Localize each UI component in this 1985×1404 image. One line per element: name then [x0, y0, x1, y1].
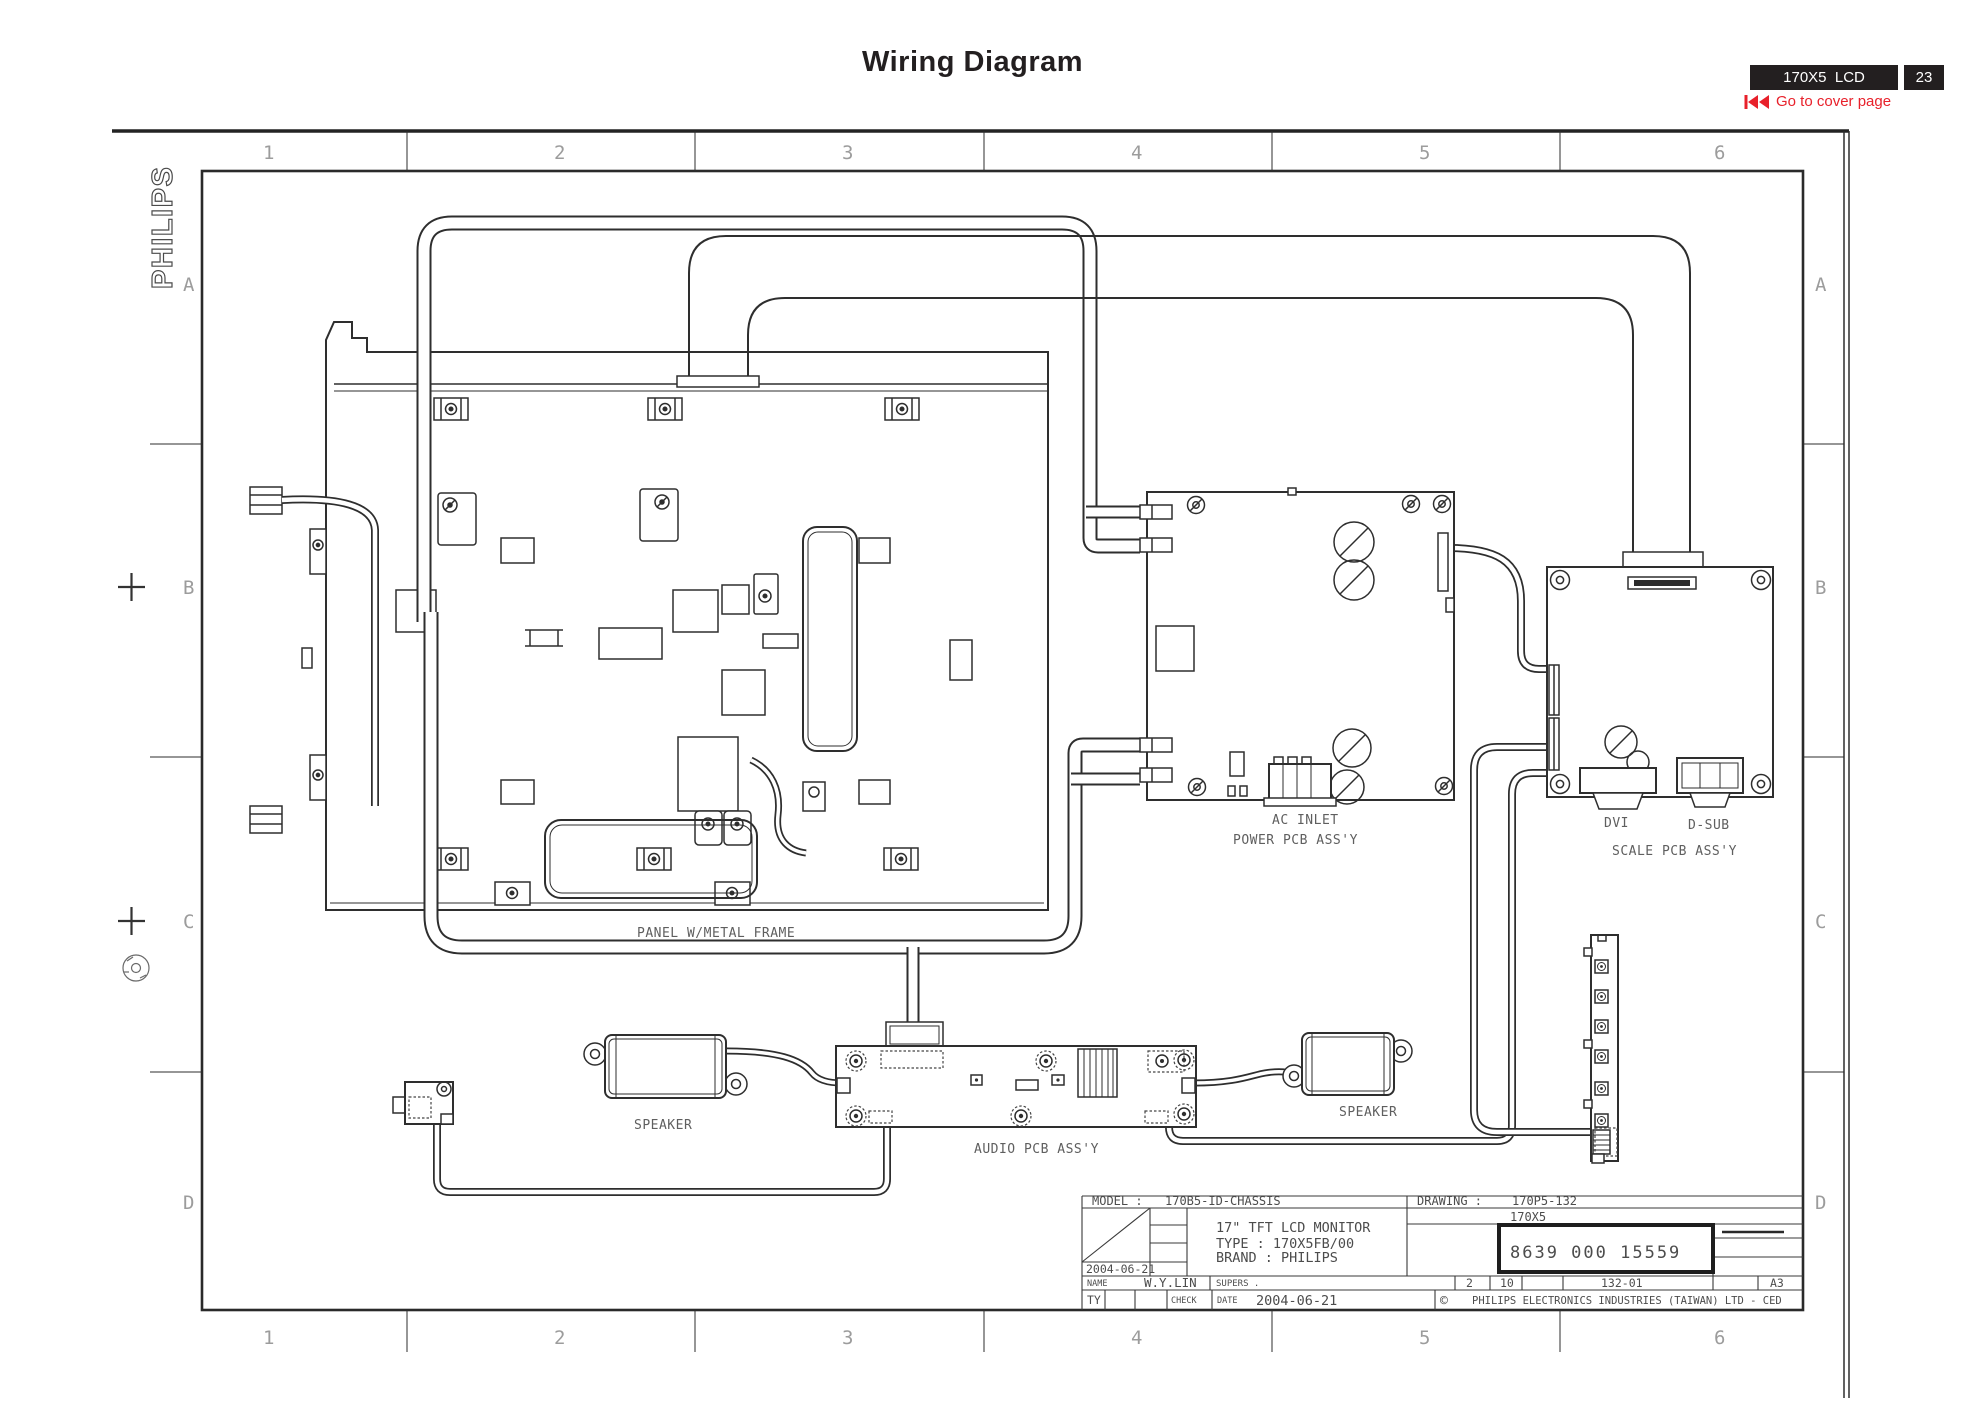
zone-col-5-top: 5	[1419, 142, 1430, 164]
cable-scale-to-keyboard	[1474, 747, 1592, 1132]
date-value: 2004-06-21	[1256, 1293, 1337, 1309]
scale-pcb-label: SCALE PCB ASS'Y	[1612, 844, 1737, 859]
zone-col-2-bottom: 2	[554, 1327, 565, 1349]
supers-label: SUPERS .	[1216, 1279, 1259, 1289]
copyright-mark: ©	[1440, 1294, 1448, 1309]
zone-ticks-bottom	[407, 1310, 1560, 1352]
cable-bracket	[393, 1082, 453, 1124]
dsub-connector	[1677, 758, 1743, 807]
sheet-number: 2	[1466, 1276, 1473, 1290]
revision-code: 132-01	[1601, 1276, 1643, 1290]
zone-col-3-top: 3	[842, 142, 853, 164]
desc-line3: BRAND : PHILIPS	[1216, 1250, 1338, 1266]
panel-assembly	[250, 322, 1048, 910]
zone-col-2-top: 2	[554, 142, 565, 164]
dsub-label: D-SUB	[1688, 818, 1730, 833]
drawing-value: 170P5-132	[1512, 1194, 1577, 1208]
ac-inlet-connector	[1264, 757, 1336, 806]
ty-label: TY	[1087, 1293, 1101, 1307]
name-value: W.Y.LIN	[1144, 1275, 1197, 1290]
register-marks	[118, 573, 145, 935]
model-value: 170B5-ID-CHASSIS	[1165, 1194, 1281, 1208]
zone-col-4-top: 4	[1131, 142, 1142, 164]
zone-row-a-left: A	[183, 274, 195, 296]
power-pcb-label: POWER PCB ASS'Y	[1233, 833, 1358, 848]
dvi-connector	[1580, 768, 1656, 809]
zone-col-6-top: 6	[1714, 142, 1725, 164]
panel-rail-clips	[434, 398, 919, 420]
zone-col-3-bottom: 3	[842, 1327, 853, 1349]
zone-row-b-right: B	[1815, 577, 1826, 599]
company-name: PHILIPS ELECTRONICS INDUSTRIES (TAIWAN) …	[1472, 1295, 1782, 1307]
zone-ticks-top	[407, 131, 1560, 171]
panel-bottom-clips	[434, 848, 918, 905]
check-label: CHECK	[1171, 1296, 1197, 1306]
panel-left-clamps	[250, 487, 326, 833]
zone-row-d-left: D	[183, 1192, 194, 1214]
wiring-diagram-page: Wiring Diagram 170X5 LCD 23 Go to cover …	[0, 0, 1985, 1404]
sheet-total: 10	[1500, 1276, 1514, 1290]
zone-row-c-right: C	[1815, 911, 1826, 933]
desc-line1: 17" TFT LCD MONITOR	[1216, 1220, 1371, 1236]
cable-panel-to-power-bottom	[431, 612, 1140, 947]
cable-panel-left	[282, 499, 375, 806]
product-code: 170X5	[1510, 1210, 1546, 1224]
zone-col-1-top: 1	[263, 142, 274, 164]
right-speaker-label: SPEAKER	[1339, 1105, 1397, 1120]
paper-size: A3	[1770, 1276, 1784, 1290]
scale-pcb-top-slot	[1628, 577, 1696, 589]
cable-power-to-scale	[1448, 548, 1552, 669]
zone-row-d-right: D	[1815, 1192, 1826, 1214]
scale-pcb-left-connectors	[1549, 665, 1559, 770]
left-speaker: SPEAKER	[584, 1035, 747, 1133]
zone-row-b-left: B	[183, 577, 194, 599]
philips-logo: PHILIPS	[147, 166, 179, 289]
panel-label: PANEL W/METAL FRAME	[637, 926, 795, 941]
zone-col-4-bottom: 4	[1131, 1327, 1142, 1349]
audio-pcb-label: AUDIO PCB ASS'Y	[974, 1142, 1099, 1157]
power-pcb: AC INLET POWER PCB ASS'Y	[1140, 488, 1454, 848]
date-small: 2004-06-21	[1086, 1262, 1155, 1276]
zone-col-5-bottom: 5	[1419, 1327, 1430, 1349]
zone-col-6-bottom: 6	[1714, 1327, 1725, 1349]
drawing-label: DRAWING :	[1417, 1194, 1482, 1208]
panel-slot	[803, 527, 857, 751]
part-number: 8639 000 15559	[1510, 1243, 1681, 1263]
scale-pcb: DVI D-SUB SCALE PCB ASS'Y	[1547, 567, 1773, 859]
ac-inlet-label: AC INLET	[1272, 813, 1339, 828]
date-label: DATE	[1217, 1296, 1237, 1306]
name-label: NAME	[1087, 1279, 1107, 1289]
zone-row-c-left: C	[183, 911, 194, 933]
approval-stamp-icon	[123, 955, 149, 981]
title-block: MODEL : 170B5-ID-CHASSIS DRAWING : 170P5…	[1082, 1194, 1803, 1310]
model-label: MODEL :	[1092, 1194, 1143, 1208]
zone-row-a-right: A	[1815, 274, 1827, 296]
left-speaker-label: SPEAKER	[634, 1118, 692, 1133]
right-speaker: SPEAKER	[1283, 1033, 1412, 1120]
diagram-canvas: 1 2 3 4 5 6 1 2 3 4 5 6 A B C D A B C D	[0, 0, 1985, 1404]
zone-col-1-bottom: 1	[263, 1327, 274, 1349]
dvi-label: DVI	[1604, 816, 1629, 831]
